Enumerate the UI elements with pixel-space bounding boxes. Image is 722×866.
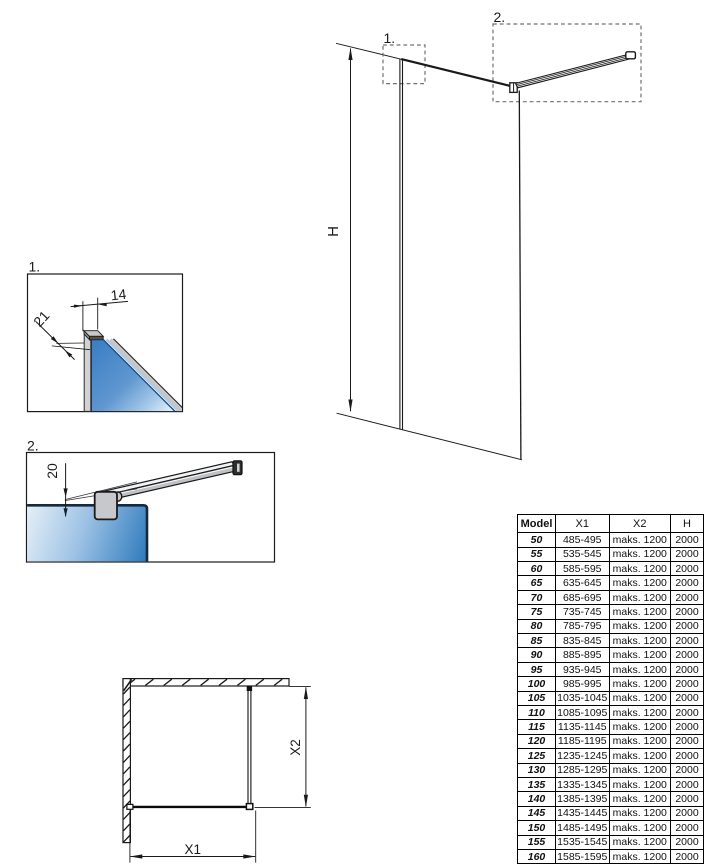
svg-text:2.: 2. <box>27 438 39 454</box>
svg-text:20: 20 <box>44 463 60 479</box>
svg-text:2.: 2. <box>494 9 506 25</box>
svg-text:14: 14 <box>110 286 127 304</box>
svg-text:X1: X1 <box>185 842 202 857</box>
svg-text:1.: 1. <box>384 30 396 46</box>
svg-text:X2: X2 <box>288 739 303 756</box>
svg-text:H: H <box>325 226 342 237</box>
svg-text:1.: 1. <box>29 259 41 275</box>
